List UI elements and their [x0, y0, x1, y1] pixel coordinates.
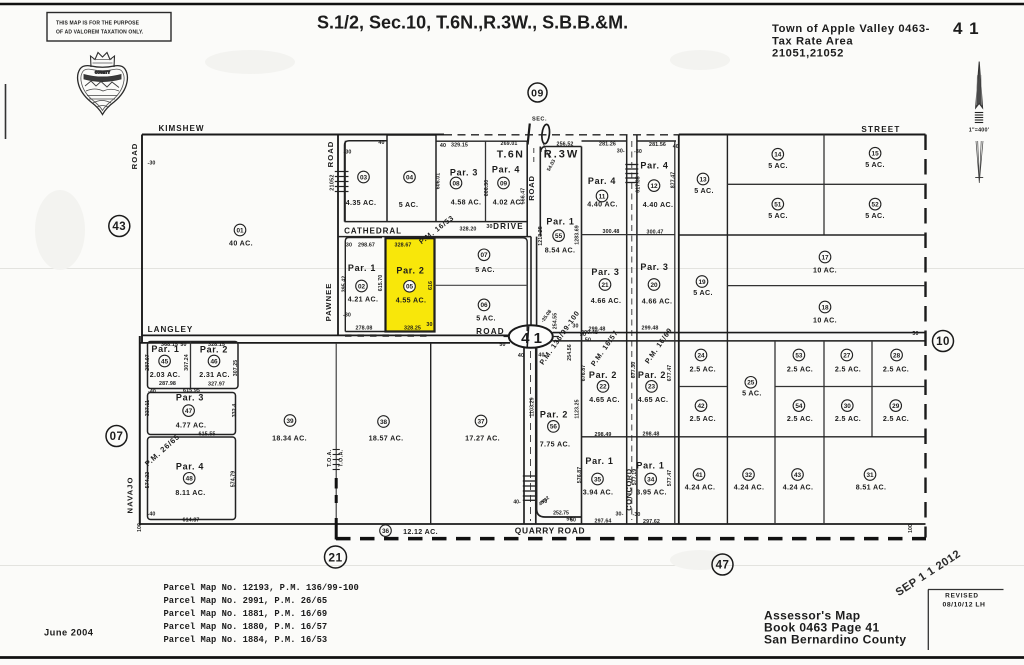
- svg-text:-30: -30: [147, 161, 155, 167]
- svg-text:Par. 4: Par. 4: [492, 165, 520, 175]
- svg-text:13: 13: [699, 176, 707, 183]
- svg-text:40 AC.: 40 AC.: [229, 240, 253, 248]
- svg-text:100: 100: [908, 524, 914, 533]
- svg-text:41: 41: [695, 472, 703, 479]
- svg-text:51: 51: [774, 201, 782, 208]
- svg-text:1"=400': 1"=400': [969, 128, 989, 134]
- svg-text:8.11 AC.: 8.11 AC.: [175, 489, 205, 497]
- svg-text:34: 34: [647, 476, 655, 483]
- svg-text:23: 23: [648, 384, 656, 391]
- svg-text:606.01: 606.01: [436, 173, 442, 189]
- svg-text:19: 19: [698, 279, 706, 286]
- svg-text:Par. 2: Par. 2: [396, 266, 424, 276]
- svg-text:4.24 AC.: 4.24 AC.: [685, 484, 716, 492]
- svg-text:606.30: 606.30: [484, 180, 490, 196]
- svg-text:327.97: 327.97: [208, 381, 225, 387]
- svg-text:38: 38: [380, 419, 388, 426]
- svg-text:2.5 AC.: 2.5 AC.: [883, 366, 909, 374]
- svg-text:21: 21: [601, 282, 609, 289]
- svg-text:COUNTY: COUNTY: [95, 71, 111, 75]
- svg-text:10 AC.: 10 AC.: [813, 317, 837, 325]
- svg-text:5 AC.: 5 AC.: [694, 187, 714, 195]
- svg-text:328.15: 328.15: [208, 342, 225, 348]
- svg-text:278.08: 278.08: [356, 326, 373, 332]
- svg-text:Par. 1: Par. 1: [348, 263, 376, 273]
- svg-text:574.79: 574.79: [231, 471, 237, 487]
- svg-text:Tax Rate Area: Tax Rate Area: [772, 36, 853, 48]
- svg-text:677.47: 677.47: [667, 365, 673, 381]
- svg-text:T.O.A.: T.O.A.: [327, 449, 333, 467]
- svg-text:OF AD VALOREM TAXATION ONLY.: OF AD VALOREM TAXATION ONLY.: [56, 30, 144, 36]
- svg-text:299.48: 299.48: [581, 330, 598, 336]
- svg-text:298.67: 298.67: [358, 243, 375, 249]
- svg-text:08: 08: [452, 180, 460, 187]
- svg-text:3.94 AC.: 3.94 AC.: [583, 489, 614, 497]
- svg-text:STREET: STREET: [861, 125, 900, 134]
- svg-text:Parcel Map No. 1884, P.M. 16/5: Parcel Map No. 1884, P.M. 16/53: [164, 635, 328, 645]
- svg-text:7.75 AC.: 7.75 AC.: [540, 441, 571, 449]
- svg-text:30-: 30-: [615, 512, 623, 518]
- svg-text:2.31 AC.: 2.31 AC.: [199, 371, 230, 379]
- svg-text:30: 30: [844, 403, 852, 410]
- svg-text:21: 21: [328, 550, 342, 564]
- svg-text:5 AC.: 5 AC.: [475, 266, 495, 274]
- svg-text:4 1: 4 1: [953, 19, 980, 38]
- svg-text:08/10/12 LH: 08/10/12 LH: [943, 602, 986, 609]
- svg-text:June 2004: June 2004: [44, 628, 94, 638]
- svg-text:SEC.: SEC.: [532, 116, 547, 122]
- svg-text:615.70: 615.70: [378, 275, 384, 291]
- svg-text:Par. 1: Par. 1: [636, 461, 664, 471]
- svg-text:281.26: 281.26: [599, 141, 616, 147]
- svg-text:100: 100: [137, 523, 143, 532]
- svg-text:25: 25: [747, 380, 755, 387]
- svg-text:18: 18: [821, 304, 829, 311]
- svg-text:5 AC.: 5 AC.: [865, 212, 885, 220]
- svg-text:4.24 AC.: 4.24 AC.: [783, 484, 814, 492]
- svg-text:T.O.A.: T.O.A.: [339, 449, 345, 467]
- svg-text:04: 04: [406, 174, 414, 181]
- svg-text:307.24: 307.24: [184, 354, 190, 370]
- svg-text:300.48: 300.48: [603, 229, 620, 235]
- svg-text:14: 14: [774, 152, 782, 159]
- svg-text:42: 42: [697, 403, 705, 410]
- svg-text:395.42: 395.42: [341, 276, 347, 292]
- svg-text:677.30: 677.30: [631, 362, 637, 378]
- svg-text:4.02 AC.: 4.02 AC.: [493, 199, 524, 207]
- svg-text:28: 28: [893, 352, 901, 359]
- svg-text:4.77 AC.: 4.77 AC.: [176, 421, 207, 429]
- svg-text:566.47: 566.47: [521, 188, 527, 204]
- svg-text:1283.69: 1283.69: [574, 225, 580, 244]
- svg-text:2.03 AC.: 2.03 AC.: [150, 371, 181, 379]
- svg-text:10 AC.: 10 AC.: [813, 266, 837, 274]
- svg-text:52: 52: [872, 201, 880, 208]
- svg-text:4.66 AC.: 4.66 AC.: [591, 297, 622, 305]
- svg-text:T.6N: T.6N: [497, 149, 525, 161]
- svg-text:12.12 AC.: 12.12 AC.: [403, 528, 438, 536]
- svg-text:ROAD: ROAD: [527, 175, 536, 201]
- svg-text:300.47: 300.47: [647, 230, 664, 236]
- svg-text:R.3W: R.3W: [544, 149, 580, 161]
- svg-text:254.56: 254.56: [567, 344, 573, 360]
- svg-text:8.54 AC.: 8.54 AC.: [545, 246, 576, 254]
- svg-text:24: 24: [697, 352, 705, 359]
- svg-text:574.22: 574.22: [145, 472, 151, 488]
- svg-text:8.51 AC.: 8.51 AC.: [856, 484, 887, 492]
- svg-text:269.01: 269.01: [501, 141, 518, 147]
- svg-text:616: 616: [428, 281, 434, 290]
- svg-text:22: 22: [599, 384, 607, 391]
- svg-text:5 AC.: 5 AC.: [768, 162, 788, 170]
- svg-text:37: 37: [477, 418, 485, 425]
- svg-text:Par. 4: Par. 4: [588, 176, 616, 186]
- svg-text:877.47: 877.47: [671, 172, 677, 188]
- svg-text:20: 20: [650, 282, 658, 289]
- svg-text:02: 02: [358, 283, 366, 290]
- svg-text:Par. 2: Par. 2: [638, 370, 666, 380]
- svg-text:55: 55: [555, 233, 563, 240]
- svg-text:332.4: 332.4: [232, 404, 238, 417]
- svg-text:07: 07: [480, 252, 488, 259]
- svg-text:Town of Apple Valley 0463-: Town of Apple Valley 0463-: [772, 23, 930, 35]
- svg-text:36: 36: [382, 528, 390, 535]
- svg-text:1213.28: 1213.28: [538, 226, 544, 245]
- svg-text:2.5 AC.: 2.5 AC.: [835, 415, 861, 423]
- svg-text:31: 31: [866, 472, 874, 479]
- svg-text:09: 09: [500, 180, 508, 187]
- svg-text:287.98: 287.98: [159, 381, 176, 387]
- svg-text:Parcel Map No. 1880, P.M. 16/5: Parcel Map No. 1880, P.M. 16/57: [164, 622, 328, 632]
- svg-text:10: 10: [936, 336, 950, 348]
- svg-text:1123.25: 1123.25: [574, 399, 580, 418]
- svg-text:50: 50: [912, 331, 918, 337]
- svg-text:45: 45: [161, 358, 169, 365]
- svg-text:368.15: 368.15: [161, 342, 178, 348]
- svg-text:329.15: 329.15: [451, 142, 468, 148]
- svg-text:REVISED: REVISED: [945, 593, 979, 600]
- svg-text:617.35: 617.35: [636, 176, 642, 192]
- svg-text:40: 40: [378, 140, 384, 146]
- svg-text:18.34 AC.: 18.34 AC.: [272, 435, 307, 443]
- svg-text:Parcel Map No. 2991, P.M. 26/6: Parcel Map No. 2991, P.M. 26/65: [164, 596, 328, 606]
- svg-text:Parcel Map No. 12193, P.M. 136: Parcel Map No. 12193, P.M. 136/99-100: [164, 583, 359, 593]
- svg-text:29: 29: [892, 403, 900, 410]
- svg-text:676.87: 676.87: [581, 365, 587, 381]
- svg-text:30: 30: [486, 224, 492, 230]
- svg-text:Parcel Map No. 1881, P.M. 16/6: Parcel Map No. 1881, P.M. 16/69: [164, 609, 328, 619]
- svg-text:-30: -30: [343, 149, 351, 155]
- svg-text:4.35 AC.: 4.35 AC.: [346, 199, 377, 207]
- svg-text:307.25: 307.25: [233, 360, 239, 376]
- svg-text:Par. 2: Par. 2: [589, 370, 617, 380]
- svg-text:06: 06: [480, 302, 488, 309]
- svg-text:328.25: 328.25: [404, 326, 421, 332]
- svg-text:Par. 1: Par. 1: [585, 456, 613, 466]
- svg-text:47: 47: [716, 560, 730, 572]
- svg-text:17: 17: [821, 254, 829, 261]
- svg-text:07: 07: [110, 431, 124, 443]
- svg-text:4 1: 4 1: [521, 330, 542, 347]
- svg-text:4.65 AC.: 4.65 AC.: [589, 396, 620, 404]
- svg-text:Par. 2: Par. 2: [540, 410, 568, 420]
- svg-text:48: 48: [186, 476, 194, 483]
- svg-text:1103.29: 1103.29: [530, 397, 536, 416]
- svg-text:4.66 AC.: 4.66 AC.: [642, 298, 673, 306]
- svg-text:-30: -30: [632, 512, 640, 518]
- svg-text:Par. 3: Par. 3: [640, 262, 668, 272]
- svg-text:4.24 AC.: 4.24 AC.: [734, 484, 765, 492]
- svg-text:5 AC.: 5 AC.: [768, 212, 788, 220]
- svg-text:CATHEDRAL: CATHEDRAL: [344, 226, 402, 235]
- svg-text:281.56: 281.56: [649, 142, 666, 148]
- svg-text:05: 05: [406, 284, 414, 291]
- svg-text:39: 39: [286, 418, 294, 425]
- svg-text:5 AC.: 5 AC.: [865, 161, 885, 169]
- svg-text:53: 53: [795, 352, 803, 359]
- svg-text:18.57 AC.: 18.57 AC.: [369, 435, 404, 443]
- svg-text:-40: -40: [147, 511, 155, 517]
- svg-text:2.5 AC.: 2.5 AC.: [883, 415, 909, 423]
- svg-text:03: 03: [360, 174, 368, 181]
- svg-text:297.64: 297.64: [595, 519, 612, 525]
- svg-text:287.07: 287.07: [145, 354, 151, 370]
- svg-text:Par. 3: Par. 3: [450, 168, 478, 178]
- svg-text:Par. 1: Par. 1: [546, 216, 574, 226]
- svg-text:54: 54: [795, 403, 803, 410]
- svg-text:4.55 AC.: 4.55 AC.: [396, 297, 427, 305]
- svg-text:-30: -30: [634, 149, 642, 155]
- svg-text:577.19: 577.19: [632, 469, 638, 485]
- svg-text:12: 12: [650, 183, 658, 190]
- svg-text:21052: 21052: [329, 174, 335, 191]
- svg-text:4.21 AC.: 4.21 AC.: [348, 296, 379, 304]
- svg-text:32: 32: [745, 472, 753, 479]
- svg-text:Par. 3: Par. 3: [591, 267, 619, 277]
- svg-text:43: 43: [794, 472, 802, 479]
- svg-text:46: 46: [210, 358, 218, 365]
- svg-text:THIS MAP IS FOR THE PURPOSE: THIS MAP IS FOR THE PURPOSE: [56, 21, 140, 27]
- svg-text:50: 50: [566, 517, 572, 523]
- svg-text:40: 40: [518, 353, 524, 359]
- svg-text:4.58 AC.: 4.58 AC.: [451, 199, 482, 207]
- svg-text:4.40 AC.: 4.40 AC.: [643, 201, 674, 209]
- svg-text:2.5 AC.: 2.5 AC.: [787, 415, 813, 423]
- svg-text:2.5 AC.: 2.5 AC.: [690, 366, 716, 374]
- svg-text:21051,21052: 21051,21052: [772, 48, 844, 60]
- svg-text:299.48: 299.48: [642, 326, 659, 332]
- svg-text:50: 50: [585, 338, 591, 344]
- svg-text:40-: 40-: [513, 499, 521, 505]
- svg-text:615.95: 615.95: [183, 388, 200, 394]
- svg-text:30-: 30-: [617, 148, 625, 154]
- svg-text:254.55: 254.55: [553, 313, 559, 329]
- svg-text:50: 50: [180, 342, 186, 348]
- svg-text:17.27 AC.: 17.27 AC.: [465, 435, 500, 443]
- svg-text:5 AC.: 5 AC.: [476, 315, 496, 323]
- svg-text:2.5 AC.: 2.5 AC.: [787, 366, 813, 374]
- svg-text:40: 40: [673, 144, 679, 150]
- svg-text:43: 43: [112, 221, 126, 233]
- svg-text:-40: -40: [148, 389, 156, 395]
- svg-text:4.65 AC.: 4.65 AC.: [638, 396, 669, 404]
- svg-text:5 AC.: 5 AC.: [693, 289, 713, 297]
- svg-text:615.55: 615.55: [199, 432, 216, 438]
- svg-text:30: 30: [426, 322, 432, 328]
- svg-text:DRIVE: DRIVE: [493, 222, 524, 231]
- svg-text:-40: -40: [540, 499, 548, 505]
- svg-text:5 AC.: 5 AC.: [399, 201, 419, 209]
- svg-text:S.1/2, Sec.10, T.6N.,R.3W., S.: S.1/2, Sec.10, T.6N.,R.3W., S.B.B.&M.: [317, 13, 628, 33]
- svg-text:337.11: 337.11: [145, 400, 151, 416]
- svg-text:ROAD: ROAD: [476, 327, 505, 336]
- svg-text:328.67: 328.67: [395, 243, 412, 249]
- svg-text:4.40 AC.: 4.40 AC.: [587, 201, 618, 209]
- svg-text:56: 56: [550, 424, 558, 431]
- svg-text:15: 15: [872, 151, 880, 158]
- svg-text:09: 09: [531, 87, 544, 99]
- svg-text:KIMSHEW: KIMSHEW: [158, 124, 204, 133]
- svg-text:2.5 AC.: 2.5 AC.: [690, 415, 716, 423]
- svg-text:47: 47: [185, 408, 193, 415]
- svg-text:Par. 4: Par. 4: [176, 462, 204, 472]
- svg-text:ROAD: ROAD: [326, 141, 335, 168]
- svg-text:328.20: 328.20: [460, 226, 477, 232]
- svg-text:256.52: 256.52: [557, 141, 574, 147]
- svg-text:577.47: 577.47: [667, 470, 673, 486]
- svg-text:PAWNEE: PAWNEE: [324, 283, 333, 322]
- svg-text:Par. 4: Par. 4: [640, 161, 668, 171]
- svg-text:298.49: 298.49: [595, 432, 612, 438]
- svg-text:27: 27: [843, 352, 851, 359]
- svg-text:5 AC.: 5 AC.: [742, 390, 762, 398]
- svg-text:614.87: 614.87: [183, 518, 200, 524]
- svg-text:298.48: 298.48: [643, 432, 660, 438]
- svg-text:2.5 AC.: 2.5 AC.: [835, 366, 861, 374]
- svg-text:LANGLEY: LANGLEY: [148, 325, 194, 334]
- svg-text:297.62: 297.62: [643, 519, 660, 525]
- svg-text:-30: -30: [343, 313, 351, 319]
- svg-text:11: 11: [599, 193, 606, 200]
- svg-text:576.87: 576.87: [577, 467, 583, 483]
- svg-text:San Bernardino County: San Bernardino County: [764, 633, 906, 647]
- svg-text:50: 50: [499, 342, 505, 348]
- svg-text:01: 01: [236, 227, 244, 234]
- svg-text:35: 35: [594, 476, 602, 483]
- svg-text:3.95 AC.: 3.95 AC.: [636, 489, 667, 497]
- svg-text:30: 30: [346, 243, 352, 249]
- svg-text:40: 40: [440, 143, 446, 149]
- svg-text:ROAD: ROAD: [130, 143, 139, 170]
- svg-text:NAVAJO: NAVAJO: [125, 477, 134, 514]
- svg-text:QUARRY ROAD: QUARRY ROAD: [515, 526, 586, 536]
- svg-text:252.75: 252.75: [553, 510, 569, 516]
